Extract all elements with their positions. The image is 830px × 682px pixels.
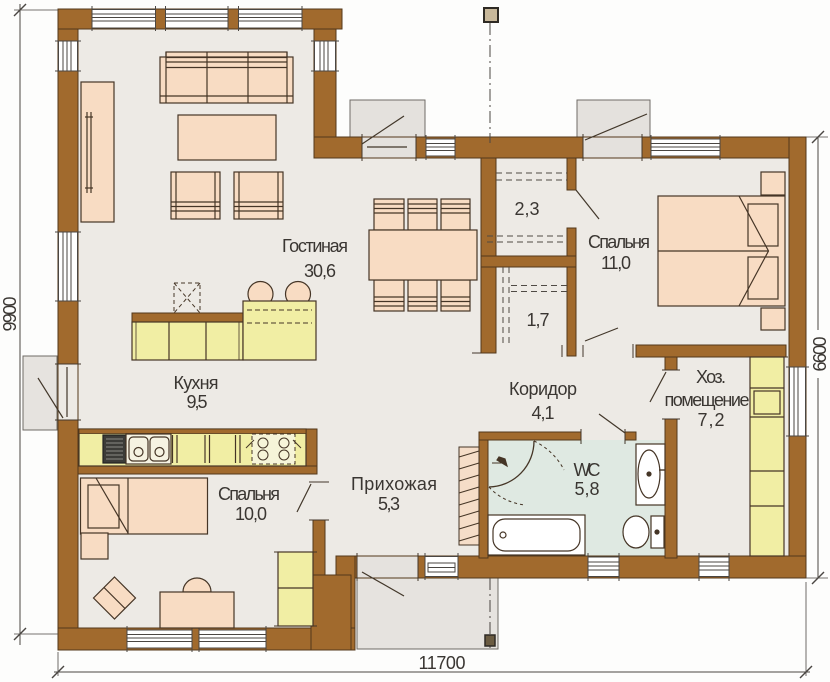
- svg-text:Прихожая: Прихожая: [351, 474, 437, 494]
- svg-text:2,3: 2,3: [515, 199, 540, 219]
- svg-text:11,0: 11,0: [601, 253, 631, 273]
- svg-text:7,2: 7,2: [698, 410, 725, 430]
- svg-text:WC: WC: [574, 460, 601, 480]
- svg-text:4,1: 4,1: [532, 403, 555, 423]
- svg-text:Хоз.: Хоз.: [696, 367, 726, 387]
- svg-text:9900: 9900: [0, 297, 20, 332]
- svg-text:Спальня: Спальня: [218, 484, 280, 504]
- svg-text:Гостиная: Гостиная: [282, 236, 348, 256]
- svg-text:Кухня: Кухня: [174, 373, 219, 393]
- svg-text:1,7: 1,7: [527, 310, 550, 330]
- svg-text:помещение: помещение: [665, 390, 750, 410]
- svg-text:10,0: 10,0: [235, 504, 267, 524]
- svg-text:30,6: 30,6: [304, 261, 336, 281]
- svg-text:9,5: 9,5: [187, 392, 208, 412]
- svg-text:5,3: 5,3: [378, 494, 400, 514]
- svg-text:5,8: 5,8: [575, 479, 600, 499]
- svg-text:Коридор: Коридор: [509, 379, 577, 399]
- svg-text:Спальня: Спальня: [588, 232, 650, 252]
- svg-text:6600: 6600: [810, 337, 830, 372]
- svg-text:11700: 11700: [419, 653, 466, 673]
